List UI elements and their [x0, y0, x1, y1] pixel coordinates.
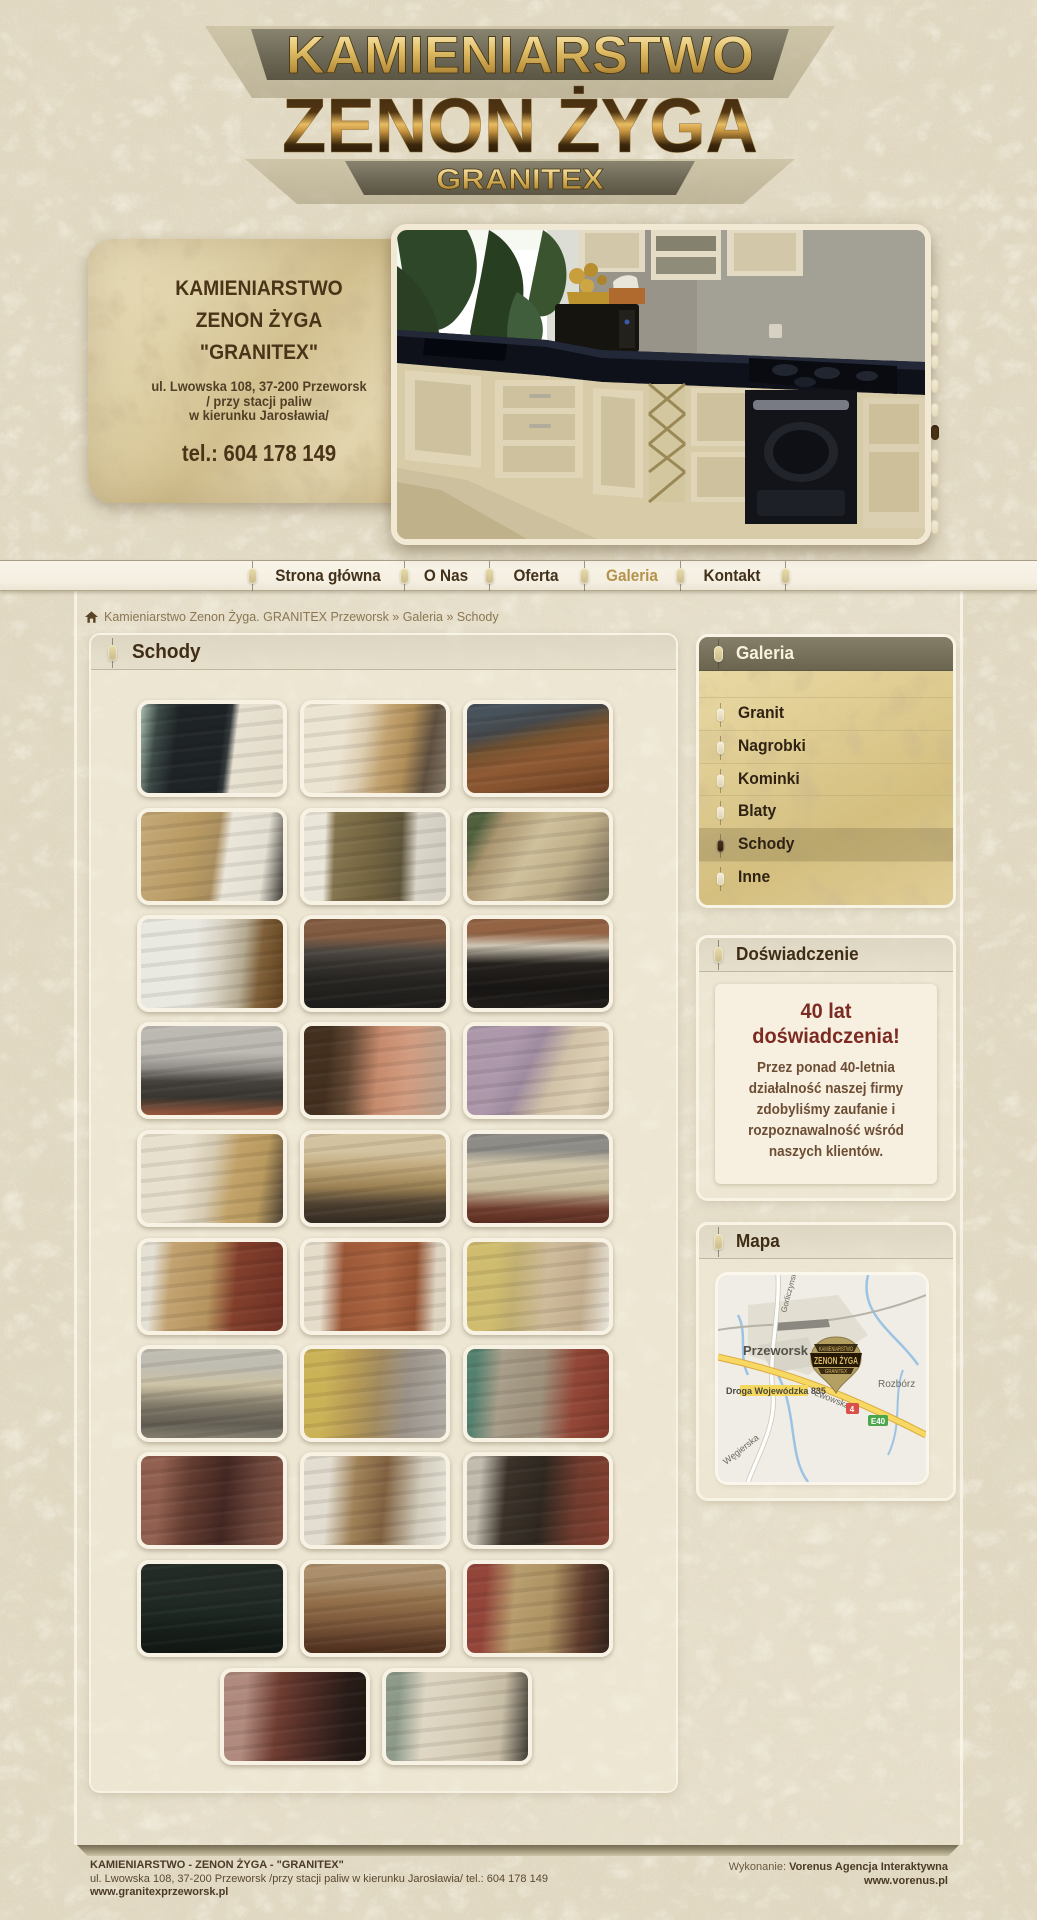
svg-text:Przeworsk: Przeworsk: [743, 1343, 809, 1358]
svg-text:E40: E40: [871, 1417, 886, 1426]
svg-text:4: 4: [850, 1405, 855, 1414]
svg-text:Droga Wojewódzka 835: Droga Wojewódzka 835: [726, 1386, 826, 1396]
svg-text:GRANITEX: GRANITEX: [436, 164, 605, 196]
svg-text:GRANITEX: GRANITEX: [825, 1369, 848, 1375]
svg-text:ZENON ŻYGA: ZENON ŻYGA: [814, 1354, 858, 1367]
svg-text:Rozbórz: Rozbórz: [878, 1379, 915, 1390]
svg-text:ZENON ŻYGA: ZENON ŻYGA: [282, 83, 758, 169]
svg-text:KAMIENIARSTWO: KAMIENIARSTWO: [819, 1347, 853, 1353]
svg-text:KAMIENIARSTWO: KAMIENIARSTWO: [286, 26, 754, 85]
